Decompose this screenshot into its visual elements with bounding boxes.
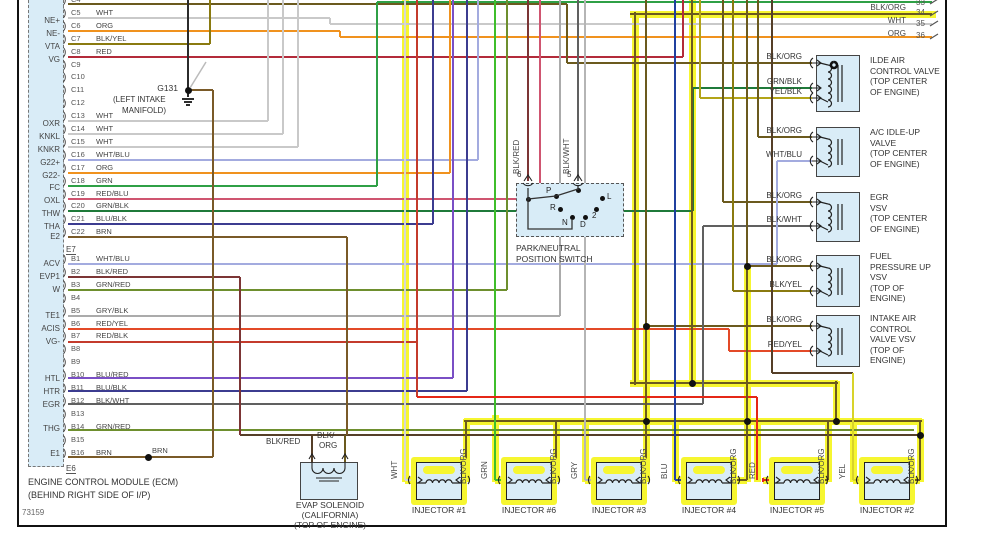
wire: [645, 326, 647, 421]
ground-name: G131: [148, 83, 178, 93]
pin-bracket: ): [63, 214, 66, 225]
ecm-signal-label: THW: [26, 209, 60, 218]
wire: [762, 478, 764, 482]
wire: [432, 0, 434, 224]
junction-dot: [689, 380, 696, 387]
wire-color-label: BLK/RED: [96, 267, 128, 276]
valve-pin-label: YEL/BLK: [720, 87, 802, 96]
wire: [68, 236, 347, 238]
ecm-title: ENGINE CONTROL MODULE (ECM): [28, 477, 178, 487]
park-contact-2: 2: [592, 211, 596, 220]
wire: [68, 198, 540, 200]
injector-feed-label: BLU: [660, 463, 669, 479]
pin-bracket: ): [63, 85, 66, 96]
valve-label: (TOP OF: [870, 345, 904, 355]
injector-return-label: BLK/ORG: [639, 448, 648, 484]
ecm-signal-label: E1: [26, 449, 60, 458]
pin-bracket: ): [63, 331, 66, 342]
wire-color-label: BRN: [96, 227, 112, 236]
ecm-signal-label: ACIS: [26, 324, 60, 333]
wire: [527, 0, 529, 181]
pin-bracket: ): [63, 344, 66, 355]
wire: [68, 185, 377, 187]
wire: [449, 0, 451, 173]
pin-id: C9: [71, 60, 81, 69]
evap-pin-left-label: BLK/RED: [266, 437, 300, 446]
pin-id: C15: [71, 137, 85, 146]
wire: [297, 0, 299, 147]
valve-pin-label: BLK/ORG: [720, 191, 802, 200]
valve-label: VSV: [870, 272, 887, 282]
ground-desc: (LEFT INTAKE: [113, 95, 166, 104]
pin-bracket: ): [63, 267, 66, 278]
pin-id: C14: [71, 124, 85, 133]
wire-color-label: ORG: [96, 163, 113, 172]
wire: [339, 31, 341, 37]
ecm-signal-label: TE1: [26, 311, 60, 320]
park-contact-L: L: [607, 192, 611, 201]
valve-label: OF ENGINE): [870, 159, 920, 169]
wire: [212, 90, 214, 457]
wire: [559, 0, 561, 316]
frame-border: [17, 0, 19, 526]
valve-label: (TOP OF: [870, 283, 904, 293]
wire: [187, 0, 189, 90]
pin-id: B6: [71, 319, 80, 328]
wire: [404, 0, 406, 480]
ground-desc2: MANIFOLD): [122, 106, 166, 115]
wire: [702, 226, 704, 404]
wire: [691, 0, 693, 385]
valve-label: VSV: [870, 203, 887, 213]
park-contact-dot: [526, 197, 531, 202]
ecm-signal-label: VG: [26, 55, 60, 64]
pin-bracket: ): [63, 176, 66, 187]
pin-bracket: ): [63, 319, 66, 330]
pin-bracket: ): [63, 448, 66, 459]
pin-bracket: ): [63, 111, 66, 122]
wire-color-label: WHT: [96, 124, 113, 133]
junction-dot: [643, 323, 650, 330]
wire: [68, 390, 467, 392]
injector-coil-pill: [871, 466, 903, 474]
pin-bracket: ): [63, 383, 66, 394]
injector-coil-pill: [693, 466, 725, 474]
wire: [329, 18, 331, 24]
ecm-signal-label: THG: [26, 424, 60, 433]
ecm-title2: (BEHIND RIGHT SIDE OF I/P): [28, 490, 150, 500]
valve-label: VALVE: [870, 138, 896, 148]
valve-box: [816, 315, 860, 367]
evap-label: (CALIFORNIA): [286, 510, 374, 520]
evap-label: EVAP SOLENOID: [286, 500, 374, 510]
park-wire-blk-wht: BLK/WHT: [562, 138, 571, 174]
injector-coil-pill: [513, 466, 545, 474]
b16-splice-label: BRN: [152, 446, 168, 455]
pin-id: B5: [71, 306, 80, 315]
ecm-signal-label: FC: [26, 183, 60, 192]
valve-box: [816, 127, 860, 177]
valve-box: [816, 255, 860, 307]
evap-label: (TOP OF ENGINE): [286, 520, 374, 530]
park-contact-D: D: [580, 220, 586, 229]
connector-label-e7: E7: [66, 245, 76, 255]
wire: [732, 0, 734, 291]
pin-bracket: ): [63, 357, 66, 368]
injector-name: INJECTOR #1: [408, 505, 470, 515]
wire: [344, 435, 346, 462]
injector-name: INJECTOR #2: [856, 505, 918, 515]
wire-color-label: RED/YEL: [96, 319, 128, 328]
wire: [68, 403, 703, 405]
pin-id: C6: [71, 21, 81, 30]
wire: [209, 0, 211, 44]
wire-color-label: WHT/BLU: [96, 254, 130, 263]
wire: [699, 0, 701, 98]
connector-label-e6: E6: [66, 464, 76, 474]
pin-id: C13: [71, 111, 85, 120]
evap-pin-right-label: BLK/: [317, 431, 334, 440]
pin-id: B8: [71, 344, 80, 353]
wire: [777, 160, 812, 162]
circuit-wire-label: WHT: [846, 16, 906, 25]
park-contact-dot: [570, 215, 575, 220]
circuit-number: 36: [916, 31, 925, 40]
pin-bracket: ): [63, 34, 66, 45]
wire-color-label: WHT: [96, 111, 113, 120]
ecm-signal-label: HTL: [26, 374, 60, 383]
ecm-signal-label: VG-: [26, 337, 60, 346]
pin-bracket: ): [63, 435, 66, 446]
wire-color-label: BLK/YEL: [96, 34, 126, 43]
wire: [416, 0, 418, 397]
injector-return-label: BLK/ORG: [817, 448, 826, 484]
wire: [68, 456, 213, 458]
pin-bracket: ): [63, 254, 66, 265]
park-contact-P: P: [546, 186, 551, 195]
wire: [539, 0, 541, 199]
junction-dot: [744, 418, 751, 425]
injector-feed-label: YEL: [838, 464, 847, 479]
valve-label: OF ENGINE): [870, 87, 920, 97]
wire: [700, 97, 812, 99]
pin-id: B15: [71, 435, 84, 444]
ecm-signal-label: EGR: [26, 400, 60, 409]
park-contact-R: R: [550, 203, 556, 212]
diagram-ref-number: 73159: [22, 508, 44, 517]
evap-pin-right-label2: ORG: [319, 441, 337, 450]
wire: [68, 341, 417, 343]
wire: [68, 120, 268, 122]
wire: [240, 434, 921, 436]
pin-bracket: ): [63, 47, 66, 58]
wire-color-label: GRN/BLK: [96, 201, 129, 210]
junction-dot: [917, 432, 924, 439]
park-contact-dot: [576, 188, 581, 193]
wire: [919, 421, 921, 480]
wire: [68, 315, 560, 317]
wire: [68, 377, 453, 379]
wire: [630, 382, 838, 384]
pin-id: C22: [71, 227, 85, 236]
pin-bracket: ): [63, 422, 66, 433]
wire: [311, 435, 313, 462]
park-switch-label2: POSITION SWITCH: [516, 254, 593, 264]
pin-bracket: ): [63, 396, 66, 407]
wire-color-label: GRY/BLK: [96, 306, 128, 315]
wire: [68, 223, 433, 225]
pin-id: C18: [71, 176, 85, 185]
pin-bracket: ): [63, 163, 66, 174]
pin-id: C19: [71, 189, 85, 198]
wire: [68, 328, 729, 330]
wire: [674, 0, 676, 480]
ecm-signal-label: THA: [26, 222, 60, 231]
pin-id: C8: [71, 47, 81, 56]
injector-feed-label: GRN: [480, 461, 489, 479]
wire: [267, 0, 269, 121]
wire: [827, 421, 829, 480]
valve-label: OF ENGINE): [870, 224, 920, 234]
wire: [282, 0, 284, 134]
junction-dot: [185, 87, 192, 94]
wire: [835, 381, 837, 423]
wire-color-label: RED/BLU: [96, 189, 129, 198]
ecm-signal-label: NE+: [26, 16, 60, 25]
park-contact-dot: [554, 194, 559, 199]
pin-bracket: ): [63, 150, 66, 161]
wire-color-label: GRN: [96, 176, 113, 185]
wire: [68, 289, 507, 291]
wire: [645, 0, 647, 326]
wire: [466, 0, 468, 391]
ecm-signal-label: OXL: [26, 196, 60, 205]
ecm-signal-label: NE-: [26, 29, 60, 38]
pin-id: B4: [71, 293, 80, 302]
pin-id: C7: [71, 34, 81, 43]
valve-label: CONTROL: [870, 324, 912, 334]
pin-id: B9: [71, 357, 80, 366]
wire-color-label: RED/BLK: [96, 331, 128, 340]
park-switch-label: PARK/NEUTRAL: [516, 243, 581, 253]
park-contact-N: N: [562, 218, 568, 227]
wire: [646, 325, 812, 327]
ecm-signal-label: HTR: [26, 387, 60, 396]
wire-color-label: ORG: [96, 21, 113, 30]
pin-bracket: ): [63, 201, 66, 212]
wire: [68, 17, 330, 19]
ecm-signal-label: G22-: [26, 171, 60, 180]
pin-id: C11: [71, 85, 84, 94]
valve-pin-label: BLK/ORG: [720, 52, 802, 61]
wire: [634, 12, 636, 385]
junction-dot: [833, 418, 840, 425]
pin-id: C21: [71, 214, 85, 223]
wire: [584, 0, 586, 480]
wire: [68, 146, 298, 148]
injector-coil-pill: [603, 466, 635, 474]
wire: [188, 89, 213, 91]
frame-border: [17, 525, 947, 527]
valve-pin-label: WHT/BLU: [720, 150, 802, 159]
pin-id: B3: [71, 280, 80, 289]
wire: [772, 372, 853, 374]
wire: [68, 172, 450, 174]
valve-label: (TOP CENTER: [870, 148, 927, 158]
wire: [757, 0, 759, 137]
park-contact-dot: [594, 207, 599, 212]
pin-bracket: ): [63, 98, 66, 109]
wire: [747, 265, 812, 267]
valve-pin-label: BLK/ORG: [720, 315, 802, 324]
park-contact-dot: [583, 215, 588, 220]
valve-label: FUEL: [870, 251, 892, 261]
wire-color-label: WHT: [96, 8, 113, 17]
valve-pin-label: BLK/YEL: [720, 280, 802, 289]
pin-bracket: ): [63, 0, 66, 6]
wire-color-label: GRN/RED: [96, 280, 131, 289]
valve-pin-label: BLK/WHT: [720, 215, 802, 224]
wire: [722, 0, 724, 202]
wiring-diagram: NE+NE-VTAVGOXRKNKLKNKRG22+G22-FCOXLTHWTH…: [0, 0, 995, 548]
junction-dot: [643, 418, 650, 425]
ecm-signal-label: KNKL: [26, 132, 60, 141]
wire: [577, 0, 579, 181]
pin-bracket: ): [63, 227, 66, 238]
injector-feed-label: GRY: [570, 462, 579, 479]
injector-coil-pill: [423, 466, 455, 474]
injector-feed-label: RED: [748, 462, 757, 479]
frame-border: [945, 0, 947, 526]
ecm-signal-label: KNKR: [26, 145, 60, 154]
wire: [239, 277, 241, 435]
wire: [340, 36, 932, 38]
pin-bracket: ): [63, 293, 66, 304]
wire: [723, 201, 812, 203]
injector-return-label: BLK/ORG: [459, 448, 468, 484]
valve-box: [816, 192, 860, 242]
wire: [852, 373, 854, 480]
pin-bracket: ): [63, 60, 66, 71]
wire: [494, 0, 496, 480]
circuit-number: 33: [916, 0, 925, 7]
wire: [330, 23, 932, 25]
wire: [68, 30, 340, 32]
park-contact-dot: [558, 207, 563, 212]
wire: [477, 0, 479, 160]
pin-id: C10: [71, 72, 85, 81]
pin-bracket: ): [63, 189, 66, 200]
pin-bracket: ): [63, 21, 66, 32]
valve-label: EGR: [870, 192, 888, 202]
wire: [68, 429, 914, 431]
circuit-wire-label: BLK/ORG: [846, 3, 906, 12]
injector-name: INJECTOR #4: [678, 505, 740, 515]
pin-bracket: ): [63, 137, 66, 148]
pin-bracket: ): [63, 409, 66, 420]
wire: [417, 396, 757, 398]
ecm-signal-label: G22+: [26, 158, 60, 167]
ecm-signal-label: ACV: [26, 259, 60, 268]
ecm-signal-label: VTA: [26, 42, 60, 51]
circuit-number: 34: [916, 8, 925, 17]
wire-color-label: WHT: [96, 137, 113, 146]
wire: [776, 161, 778, 264]
valve-label: A/C IDLE-UP: [870, 127, 920, 137]
valve-label: (TOP CENTER: [870, 213, 927, 223]
park-wire-blk-red: BLK/RED: [512, 140, 521, 174]
junction-dot: [145, 454, 152, 461]
ecm-signal-label: OXR: [26, 119, 60, 128]
pin-id: B13: [71, 409, 84, 418]
injector-name: INJECTOR #5: [766, 505, 828, 515]
pin-id: B1: [71, 254, 80, 263]
injector-coil-pill: [781, 466, 813, 474]
injector-return-label: BLK/ORG: [549, 448, 558, 484]
valve-pin-label: RED/YEL: [720, 340, 802, 349]
pin-bracket: ): [63, 72, 66, 83]
pin-id: C17: [71, 163, 85, 172]
ecm-signal-label: E2: [26, 232, 60, 241]
wire: [68, 133, 283, 135]
valve-label: CONTROL VALVE: [870, 66, 940, 76]
pin-bracket: ): [63, 8, 66, 19]
park-contact-dot: [600, 196, 605, 201]
valve-pin-label: GRN/BLK: [720, 77, 802, 86]
valve-box: [816, 55, 860, 112]
wire: [567, 62, 812, 64]
pin-id: B2: [71, 267, 80, 276]
injector-name: INJECTOR #6: [498, 505, 560, 515]
evap-solenoid-box: [300, 462, 358, 500]
wire: [682, 0, 684, 57]
wire: [703, 225, 812, 227]
pin-bracket: ): [63, 306, 66, 317]
pin-bracket: ): [63, 124, 66, 135]
pin-id: C12: [71, 98, 85, 107]
valve-label: ENGINE): [870, 355, 905, 365]
wire: [452, 0, 454, 378]
wire: [758, 136, 812, 138]
valve-pin-label: BLK/ORG: [720, 126, 802, 135]
pin-id: C5: [71, 8, 81, 17]
valve-label: INTAKE AIR: [870, 313, 916, 323]
pin-bracket: ): [63, 370, 66, 381]
wire-color-label: WHT/BLU: [96, 150, 130, 159]
wire: [68, 276, 240, 278]
valve-label: PRESSURE UP: [870, 262, 931, 272]
valve-label: ENGINE): [870, 293, 905, 303]
pin-id: B7: [71, 331, 80, 340]
wire: [566, 4, 568, 63]
ecm-signal-label: EVP1: [26, 272, 60, 281]
injector-name: INJECTOR #3: [588, 505, 650, 515]
valve-label: (TOP CENTER: [870, 76, 927, 86]
wire: [68, 263, 777, 265]
valve-pin-label: BLK/ORG: [720, 255, 802, 264]
wire-color-label: BLU/BLK: [96, 214, 127, 223]
wire-color-label: RED: [96, 47, 112, 56]
wire: [506, 0, 508, 290]
valve-label: VALVE VSV: [870, 334, 916, 344]
pin-bracket: ): [63, 280, 66, 291]
wire: [376, 2, 378, 186]
pin-id: C20: [71, 201, 85, 210]
pin-id: C16: [71, 150, 85, 159]
wire: [346, 237, 348, 435]
injector-return-label: BLK/ORG: [907, 448, 916, 484]
valve-label: ILDE AIR: [870, 55, 905, 65]
